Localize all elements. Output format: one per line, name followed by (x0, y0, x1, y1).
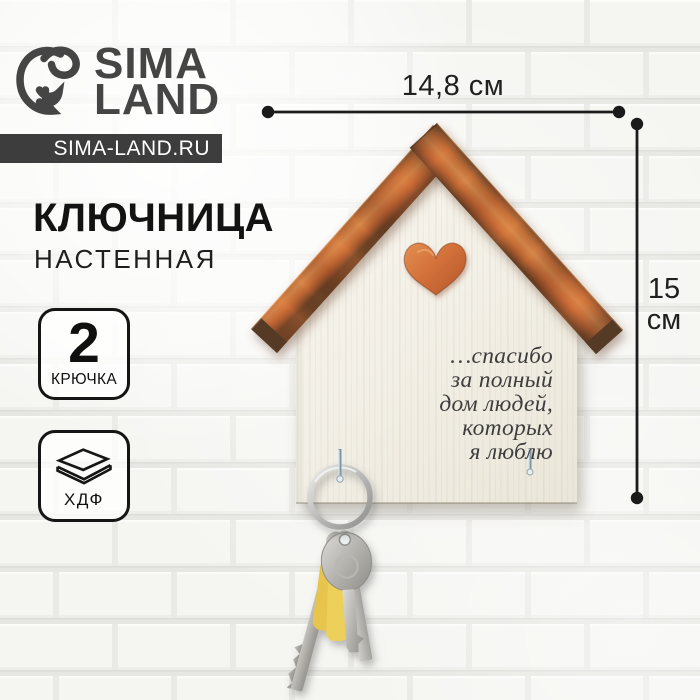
brand-website-text: SIMA-LAND.RU (53, 137, 210, 161)
height-dimension-label: 15 см (634, 274, 694, 336)
quote-line: за полный (300, 368, 553, 392)
material-label: ХДФ (64, 490, 104, 510)
product-image: SIMA LAND SIMA-LAND.RU КЛЮЧНИЦА НАСТЕННА… (0, 0, 700, 700)
product-title: КЛЮЧНИЦА (33, 196, 274, 241)
hooks-count: 2 (68, 317, 100, 369)
brand-website-bar: SIMA-LAND.RU (0, 134, 222, 163)
hooks-label: КРЮЧКА (51, 371, 117, 389)
quote-line: которых (300, 416, 553, 440)
width-dimension-label: 14,8 см (393, 70, 513, 103)
quote-line: я люблю (300, 440, 553, 464)
hooks-badge: 2 КРЮЧКА (38, 308, 130, 400)
height-dimension-unit: см (634, 305, 694, 336)
brand-name-line2: LAND (94, 82, 220, 118)
sima-land-bird-icon (14, 40, 86, 122)
quote-line: дом людей, (300, 392, 553, 416)
product-subtitle: НАСТЕННАЯ (34, 244, 217, 275)
brand-logo: SIMA LAND (14, 40, 220, 122)
material-badge: ХДФ (38, 430, 130, 522)
quote-text: …спасибо за полный дом людей, которых я … (300, 344, 553, 464)
height-dimension-value: 15 (634, 274, 694, 305)
layered-boards-icon (53, 445, 115, 487)
quote-line: …спасибо (300, 344, 553, 368)
